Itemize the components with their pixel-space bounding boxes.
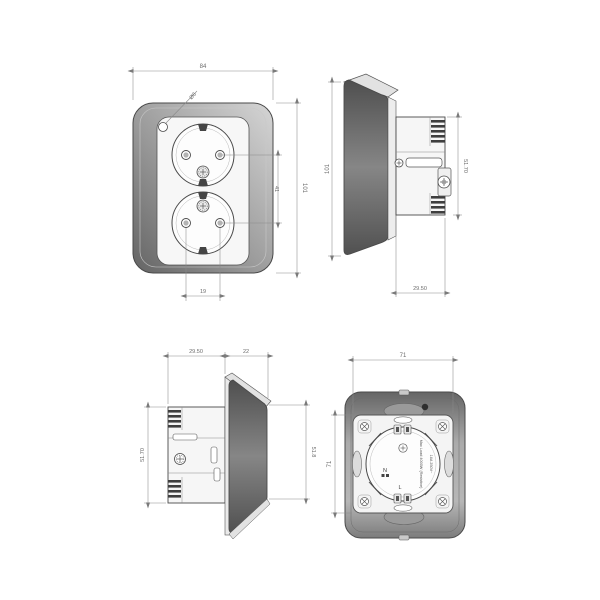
side-view-left: 29.50 22 51.70 51.8 <box>140 349 316 539</box>
side-claw <box>445 451 454 477</box>
plate-edge-strip <box>388 97 396 240</box>
pin-hole-shadow <box>217 152 222 157</box>
terminal-mark <box>386 474 389 477</box>
dim-face-height <box>269 405 310 499</box>
dim-mech-height <box>447 117 462 215</box>
screw-icon <box>175 454 186 465</box>
rear-view: N L Max Load 4000W (Resistive) 16A 250V~… <box>327 353 465 540</box>
dim-pin-spacing-label: 19 <box>200 289 206 295</box>
screw-icon <box>395 159 403 167</box>
terminal-l-label: L <box>398 485 401 491</box>
dim-mech-depth-label: 29.50 <box>413 286 427 292</box>
dim-front-height-label: 101 <box>301 183 307 194</box>
dim-mech-height-label: 51.70 <box>140 448 146 462</box>
indicator-hole <box>159 123 168 132</box>
claw-slot <box>214 468 220 481</box>
dim-rear-height-label: 71 <box>327 460 333 467</box>
dim-plate-depth-label: 22 <box>243 349 249 355</box>
pin-hole-shadow <box>183 220 188 225</box>
dim-mech-height-label: 51.70 <box>462 159 468 173</box>
claw-slot <box>211 447 217 463</box>
side-view-right: 101 51.70 29.50 <box>325 74 468 297</box>
technical-drawing-canvas: Ø6 <box>0 0 600 600</box>
frame-tab <box>399 390 409 395</box>
mount-slot <box>173 434 197 440</box>
dim-front-width-label: 84 <box>200 64 207 70</box>
plate-side-face <box>344 80 388 255</box>
screw-icon <box>438 176 450 188</box>
drawing-sheet: Ø6 <box>0 0 600 600</box>
dim-mech-height <box>144 407 166 503</box>
dim-mech-depth <box>168 352 225 404</box>
plate-slot <box>394 417 412 423</box>
pin-hole-shadow <box>217 220 222 225</box>
front-view: Ø6 <box>133 64 307 301</box>
screw-icon <box>399 444 407 452</box>
plate-slot <box>394 505 412 511</box>
pin-hole-shadow <box>183 152 188 157</box>
rating-text-line1: Max Load 4000W (Resistive) <box>419 440 423 489</box>
side-claw <box>353 451 362 477</box>
terminal-mark <box>382 474 385 477</box>
dim-front-width <box>133 67 273 100</box>
dim-socket-spacing-label: 41 <box>273 186 279 192</box>
rating-text-line2: 16A 250V~ <box>429 455 433 474</box>
dim-rear-width-label: 71 <box>400 353 407 359</box>
dim-face-height-label: 51.8 <box>310 447 316 458</box>
dim-mech-depth-label: 29.50 <box>189 349 203 355</box>
cable-hole <box>422 404 428 410</box>
indicator-diameter-label: Ø6 <box>189 92 198 101</box>
dim-side-height-label: 101 <box>325 163 331 174</box>
mechanism-body <box>366 427 440 501</box>
mount-slot <box>406 158 442 167</box>
frame-tab <box>399 535 409 540</box>
terminal-n-label: N <box>383 468 387 474</box>
